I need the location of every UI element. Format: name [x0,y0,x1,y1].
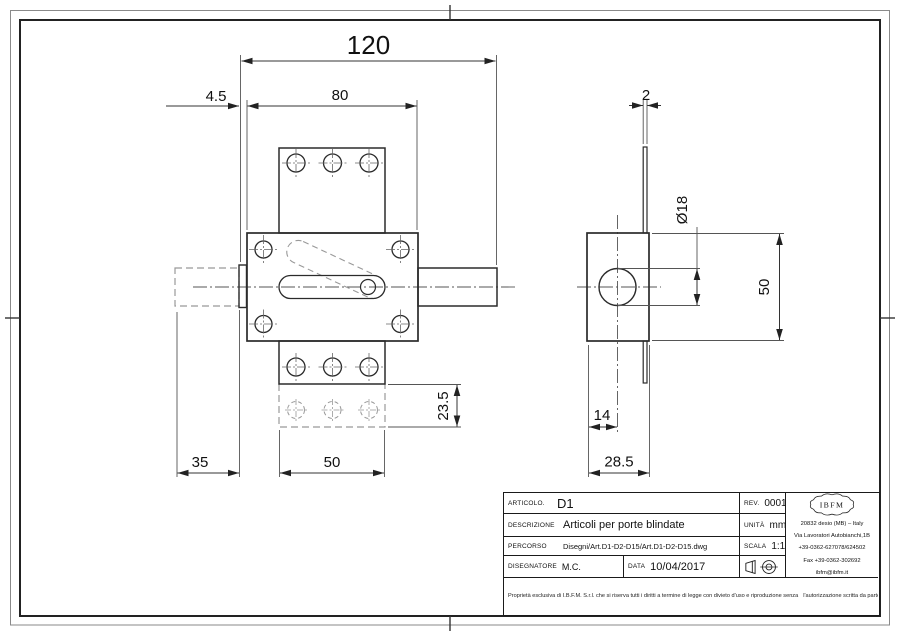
faceplate-edge [239,265,247,308]
ibfm-logo: IBFM [789,493,875,516]
dim-faceplate-thickness: 4.5 [206,88,227,105]
scala-value: 1:1 [771,541,785,552]
dim-hole-offset: 14 [594,407,611,424]
disclaimer-line: l'autorizzazione scritta da parte dell'a… [803,592,878,600]
descrizione-cell: DESCRIZIONE Articoli per porte blindate [504,514,740,537]
company-fax: Fax +39-0362-302692 [803,558,860,565]
dim-plate-extension: 23.5 [435,391,452,420]
disegnatore-cell: DISEGNATORE M.C. [504,556,624,578]
title-block: ARTICOLO. D1 REV. 0001 DESCRIZIONE Artic… [503,492,880,616]
data-label: DATA [628,563,645,570]
bottom-mounting-plate [279,341,385,384]
data-value: 10/04/2017 [650,561,705,573]
mounting-plate-edge-top [643,147,647,233]
articolo-label: ARTICOLO. [508,500,552,507]
descrizione-value: Articoli per porte blindate [563,519,685,531]
disclaimer-line: Proprietà esclusiva di I.B.F.M. S.r.l. c… [508,592,798,600]
logo-text: IBFM [820,500,845,509]
rev-label: REV. [744,500,759,507]
scala-label: SCALA [744,543,766,550]
unita-value: mm [770,520,787,531]
unita-label: UNITÀ [744,522,765,529]
data-cell: DATA 10/04/2017 [624,556,740,578]
first-angle-projection-icon [744,558,781,576]
plate-holes [287,154,378,376]
dim-body-depth: 28.5 [604,454,633,471]
articolo-cell: ARTICOLO. D1 [504,493,740,514]
percorso-cell: PERCORSO Disegni/Art.D1-D2-D15/Art.D1-D2… [504,537,740,556]
disclaimer-cell: Proprietà esclusiva di I.B.F.M. S.r.l. c… [504,578,878,614]
unita-cell: UNITÀ mm [740,514,786,537]
company-address-line: Via Lavoratori Autobianchi,1B [794,533,870,540]
disegnatore-value: M.C. [562,562,581,572]
side-view: 2 Ø18 50 14 28.5 [577,87,784,477]
disegnatore-label: DISEGNATORE [508,563,557,570]
articolo-value: D1 [557,496,574,511]
dim-total-length: 120 [347,30,390,60]
dim-body-width: 80 [332,87,349,104]
hole-centerlines [249,149,415,381]
dim-bolt-diameter: Ø18 [674,196,691,224]
rev-cell: REV. 0001 [740,493,786,514]
percorso-label: PERCORSO [508,543,558,550]
drawing-sheet: 120 4.5 80 35 50 23.5 [0,0,900,636]
mounting-plate-edge-bottom [643,341,647,383]
company-phone: +39-0362-627078/624502 [799,545,866,552]
front-view: 120 4.5 80 35 50 23.5 [166,30,516,477]
percorso-value: Disegni/Art.D1-D2-D15/Art.D1-D2-D15.dwg [563,542,707,551]
company-address-line: 20832 desio (MB) – Italy [801,521,864,528]
projection-cell [740,556,786,578]
dim-bolt-travel: 35 [192,454,209,471]
dim-body-height: 50 [756,279,773,296]
dim-plate-width: 50 [324,454,341,471]
descrizione-label: DESCRIZIONE [508,522,558,529]
hidden-lines [175,237,389,427]
company-email: ibfm@ibfm.it [816,570,848,577]
dim-plate-thickness: 2 [642,87,650,104]
company-cell: IBFM 20832 desio (MB) – Italy Via Lavora… [786,493,878,578]
rev-value: 0001 [764,498,786,509]
scala-cell: SCALA 1:1 [740,537,786,556]
